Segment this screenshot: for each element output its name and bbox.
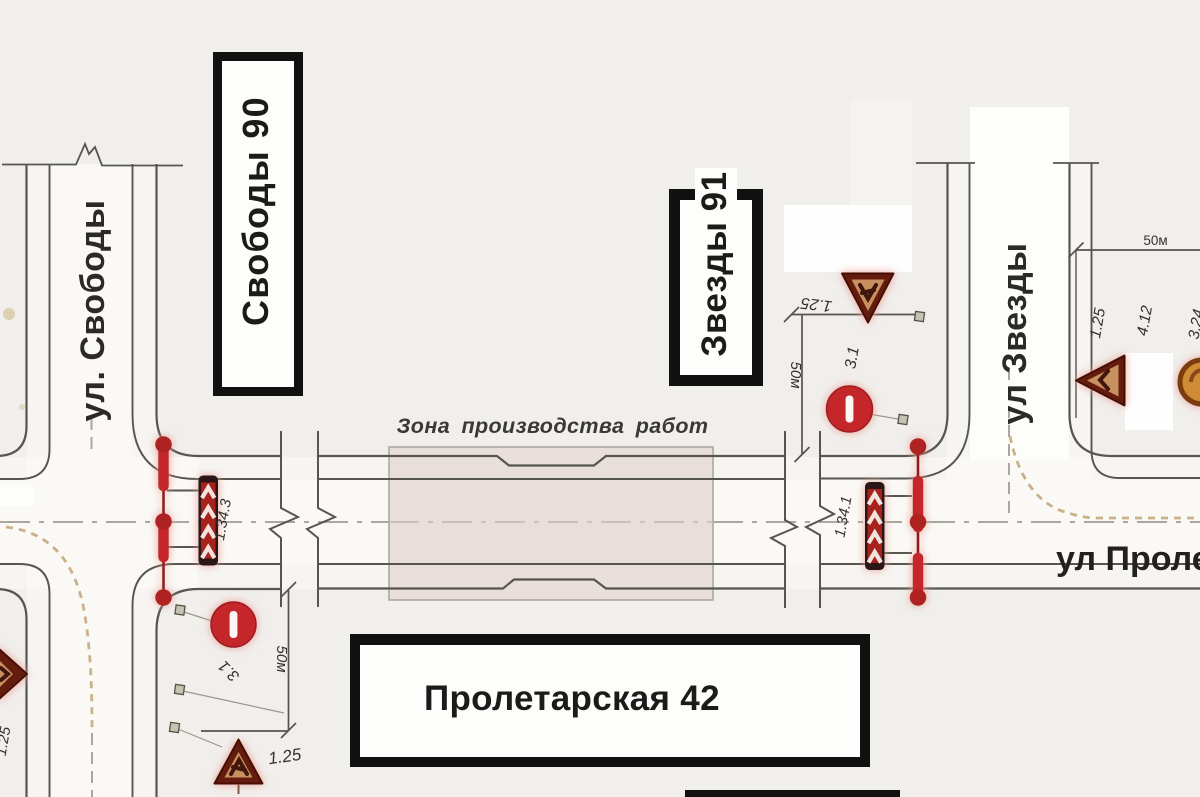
svg-text:ул Пролетарская: ул Пролетарская [1056,540,1200,578]
svg-text:Звезды 91: Звезды 91 [695,171,734,356]
svg-text:50м: 50м [787,362,804,389]
svg-text:50м: 50м [273,646,290,673]
svg-text:Свободы 90: Свободы 90 [235,96,276,326]
svg-text:50м: 50м [1143,233,1167,248]
svg-text:ул Звезды: ул Звезды [996,242,1034,424]
svg-text:Зона производства работ: Зона производства работ [397,414,709,438]
svg-text:Пролетарская 42: Пролетарская 42 [424,679,720,718]
svg-text:ул. Свободы: ул. Свободы [74,199,112,421]
